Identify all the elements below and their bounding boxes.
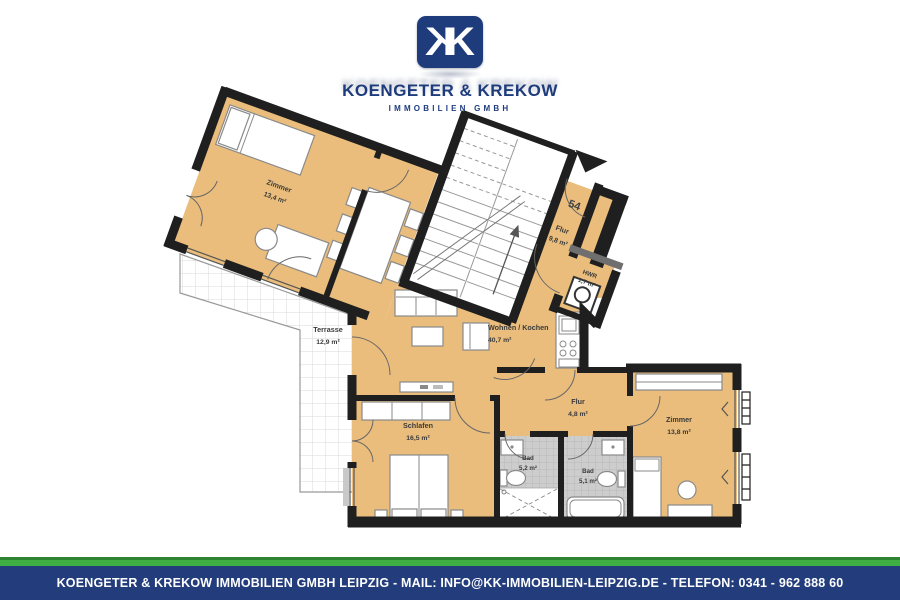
room-label-bad2: Bad — [582, 468, 594, 475]
svg-text:12,9 m²: 12,9 m² — [316, 339, 340, 346]
company-logo: K K — [417, 16, 483, 68]
kitchen-counter — [556, 312, 582, 368]
room-label-wohnen: Wohnen / Kochen — [488, 323, 549, 332]
logo-monogram-mirrored-k: K — [425, 22, 454, 62]
window-sill — [343, 468, 349, 506]
bathroom-1 — [499, 436, 559, 521]
room-label-zimmer2: Zimmer — [666, 415, 692, 424]
company-name: KOENGETER & KREKOW — [342, 81, 558, 101]
wardrobe — [362, 402, 450, 420]
svg-text:5,2 m²: 5,2 m² — [519, 465, 537, 472]
footer: KOENGETER & KREKOW IMMOBILIEN GMBH LEIPZ… — [0, 557, 900, 600]
room-label-schlafen: Schlafen — [403, 421, 433, 430]
exterior-cover — [586, 298, 654, 368]
radiator — [742, 392, 750, 500]
toilet — [507, 471, 526, 486]
toilet-tank — [618, 471, 625, 487]
bed — [633, 457, 661, 519]
armchair — [463, 323, 489, 350]
svg-text:5,1 m²: 5,1 m² — [579, 478, 597, 485]
room-label-bad1: Bad — [522, 455, 534, 462]
logo-reflection — [418, 69, 482, 79]
coffee-table — [412, 327, 443, 346]
svg-text:13,8 m²: 13,8 m² — [667, 429, 691, 436]
footer-green-bar — [0, 557, 900, 566]
footer-navy-bar: KOENGETER & KREKOW IMMOBILIEN GMBH LEIPZ… — [0, 566, 900, 600]
kitchen — [556, 312, 582, 368]
svg-text:16,5 m²: 16,5 m² — [406, 435, 430, 442]
toilet — [598, 472, 617, 487]
header: K K KOENGETER & KREKOW IMMOBILIEN GMBH — [0, 16, 900, 113]
footer-contact-text: KOENGETER & KREKOW IMMOBILIEN GMBH LEIPZ… — [57, 576, 844, 590]
room-label-terrasse: Terrasse — [313, 325, 342, 334]
company-subtitle: IMMOBILIEN GMBH — [389, 104, 512, 113]
chair — [678, 481, 696, 499]
svg-text:4,8 m²: 4,8 m² — [568, 411, 588, 418]
svg-text:40,7 m²: 40,7 m² — [488, 337, 512, 344]
room-label-flur2: Flur — [571, 397, 585, 406]
